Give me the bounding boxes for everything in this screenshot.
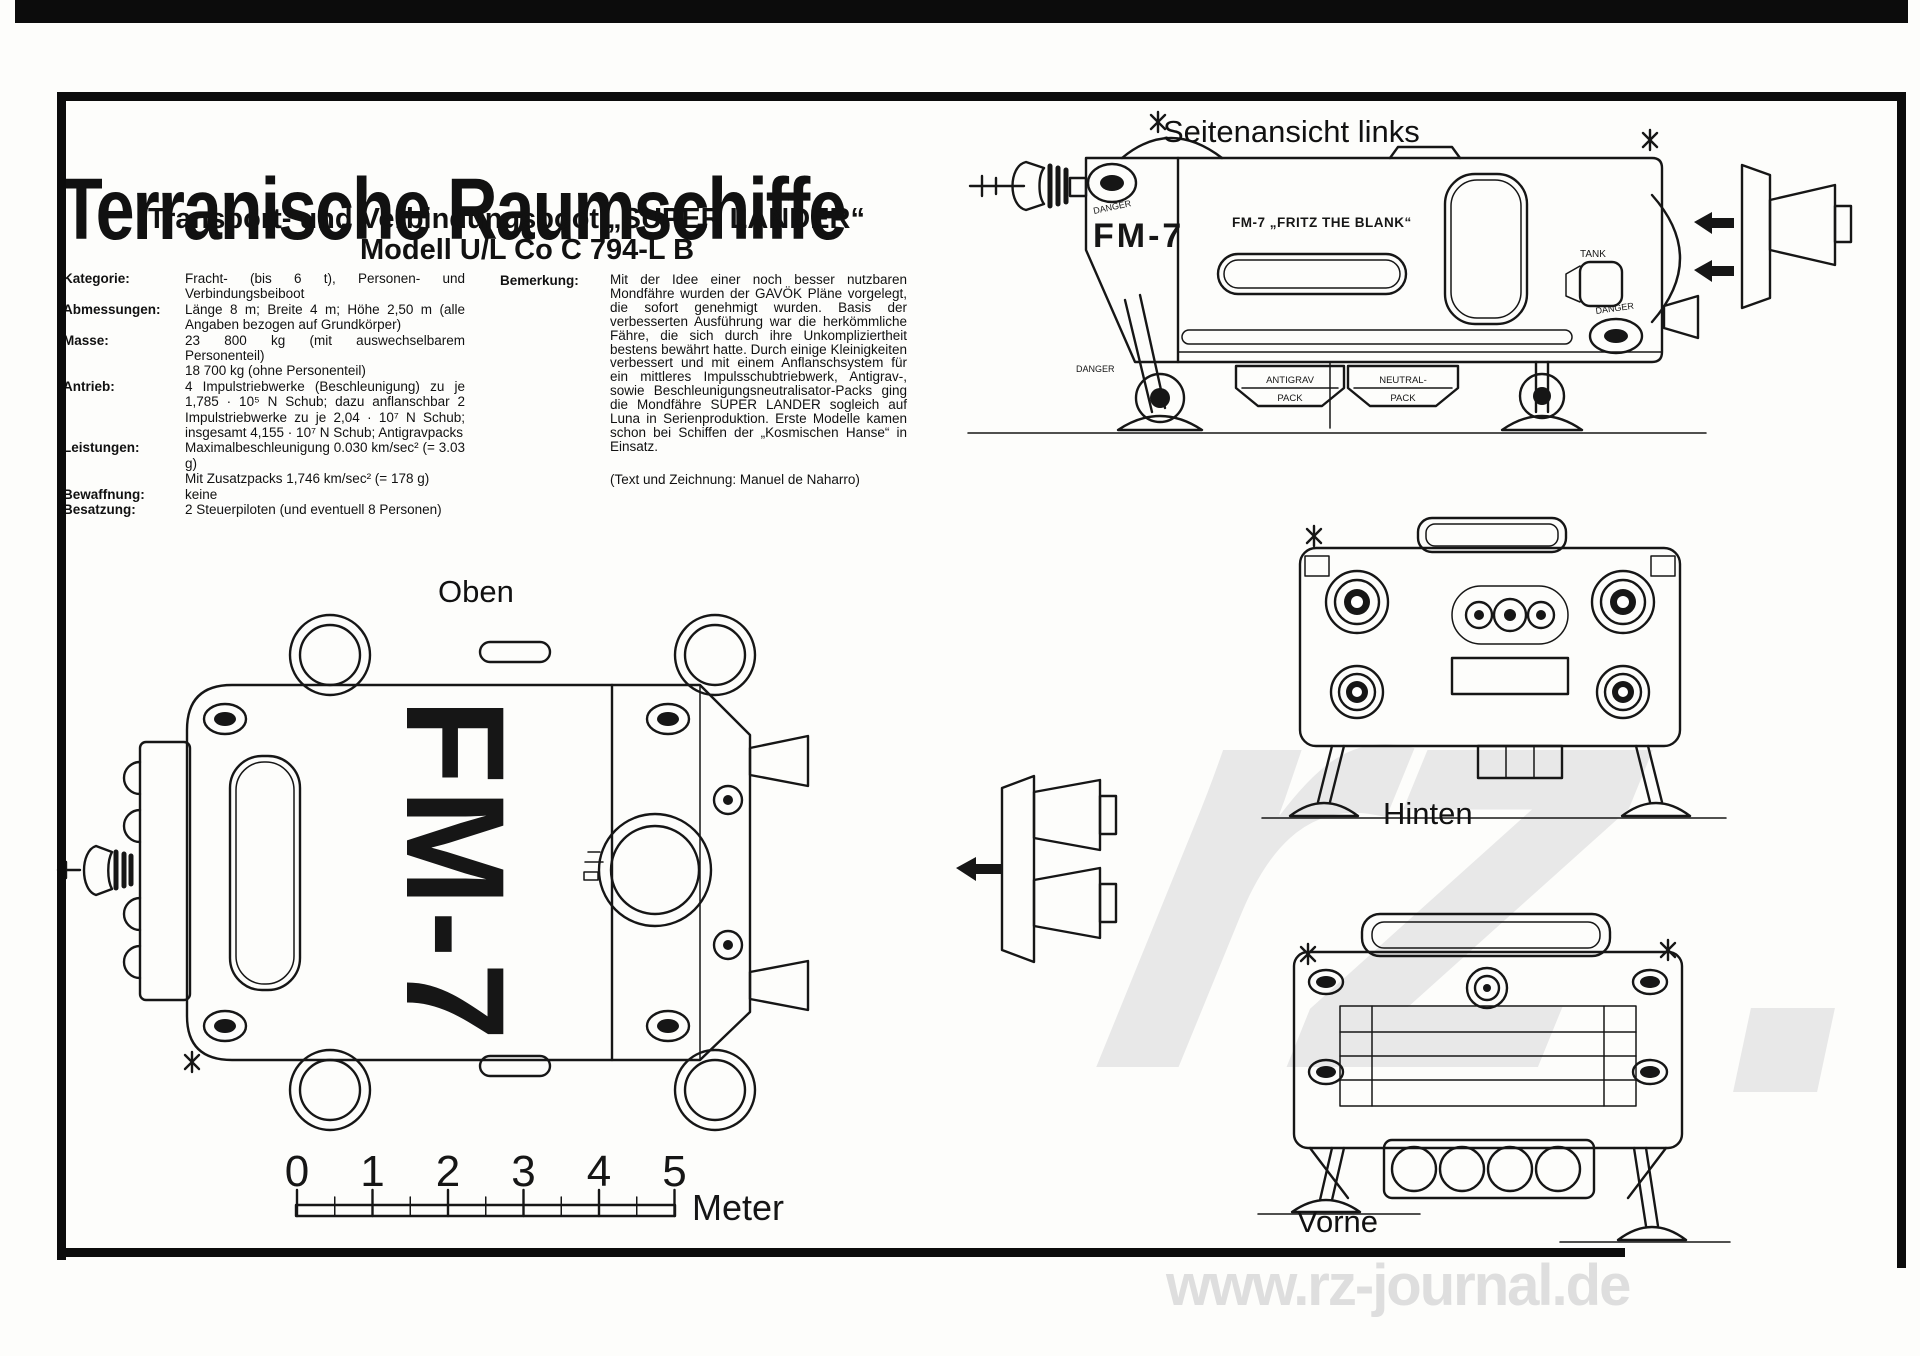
- scale-tick-label: 0: [285, 1147, 309, 1196]
- hull-code-large: FM-7: [1093, 217, 1184, 255]
- rz-journal-logo-dot: [1733, 1008, 1835, 1092]
- spec-label: Antrieb:: [63, 379, 185, 441]
- remark-text: Mit der Idee einer noch besser nutzbaren…: [610, 273, 907, 454]
- scale-tick-label: 4: [587, 1147, 611, 1196]
- spec-row-abmessungen: Abmessungen: Länge 8 m; Breite 4 m; Höhe…: [63, 302, 465, 333]
- pack-box-label: ANTIGRAV: [1266, 375, 1315, 386]
- spec-value: 2 Steuerpiloten (und eventuell 8 Persone…: [185, 502, 465, 517]
- spec-row-bewaffnung: Bewaffnung: keine: [63, 487, 465, 502]
- rz-journal-url-watermark: www.rz-journal.de: [1166, 1252, 1629, 1319]
- side-view-drawing: DANGER DANGER FM-7 FM-7 „FRITZ THE BLANK…: [960, 108, 1860, 448]
- scan-edge-strip: [15, 0, 1908, 23]
- spec-row-kategorie: Kategorie: Fracht- (bis 6 t), Personen- …: [63, 271, 465, 302]
- spec-value: 4 Impulstriebwerke (Beschleunigung) zu j…: [185, 379, 465, 441]
- scale-tick-label: 3: [511, 1147, 535, 1196]
- spec-value: Länge 8 m; Breite 4 m; Höhe 2,50 m (alle…: [185, 302, 465, 333]
- scale-tick-label: 5: [662, 1147, 686, 1196]
- pack-box-label: PACK: [1390, 393, 1416, 404]
- hull-name-plate: FM-7 „FRITZ THE BLANK“: [1232, 215, 1412, 230]
- spec-value: Maximalbeschleunigung 0.030 km/sec² (= 3…: [185, 440, 465, 486]
- spec-label: Besatzung:: [63, 502, 185, 517]
- tank-label: TANK: [1580, 249, 1606, 260]
- scale-bar: 0 1 2 3 4 5 Meter: [265, 1138, 795, 1230]
- page-subtitle: Transport- und Verbindungsboot „SUPER LA…: [148, 203, 865, 236]
- model-designation: Modell U/L Co C 794-L B: [360, 234, 694, 267]
- danger-label: DANGER: [1076, 364, 1115, 374]
- spec-row-antrieb: Antrieb: 4 Impulstriebwerke (Beschleunig…: [63, 379, 465, 441]
- frame-bottom: [57, 1248, 1625, 1257]
- spec-row-masse: Masse: 23 800 kg (mit auswechselbarem Pe…: [63, 333, 465, 379]
- pack-box-label: NEUTRAL-: [1379, 375, 1427, 386]
- lamp-icon: [185, 1052, 199, 1072]
- detach-arrow-icon: [1694, 212, 1734, 234]
- scale-unit-label: Meter: [692, 1187, 784, 1228]
- spec-value: 23 800 kg (mit auswechselbarem Personent…: [185, 333, 465, 379]
- blueprint-page: rz www.rz-journal.de Terranische Raumsch…: [0, 0, 1920, 1356]
- front-view-title: Vorne: [1297, 1204, 1378, 1240]
- danger-label: DANGER: [1092, 198, 1132, 216]
- spec-label: Bewaffnung:: [63, 487, 185, 502]
- spec-value: Fracht- (bis 6 t), Personen- und Verbind…: [185, 271, 465, 302]
- detach-arrow-icon: [956, 857, 1002, 881]
- frame-top: [57, 92, 1906, 101]
- spec-value: keine: [185, 487, 465, 502]
- spec-label: Abmessungen:: [63, 302, 185, 333]
- spec-label: Masse:: [63, 333, 185, 379]
- lamp-icon: [1307, 526, 1321, 546]
- hull-code-top: FM-7: [377, 699, 534, 1046]
- frame-left: [57, 92, 66, 1260]
- detach-arrow-icon: [1694, 260, 1734, 282]
- scale-tick-label: 1: [360, 1147, 384, 1196]
- spec-label: Kategorie:: [63, 271, 185, 302]
- frame-right: [1897, 92, 1906, 1268]
- spec-row-leistungen: Leistungen: Maximalbeschleunigung 0.030 …: [63, 440, 465, 486]
- spec-label: Leistungen:: [63, 440, 185, 486]
- side-view-title: Seitenansicht links: [1163, 114, 1420, 150]
- front-view-drawing: [1245, 888, 1735, 1258]
- spec-row-besatzung: Besatzung: 2 Steuerpiloten (und eventuel…: [63, 502, 465, 517]
- remark-label: Bemerkung:: [500, 273, 579, 288]
- remark-credit: (Text und Zeichnung: Manuel de Naharro): [610, 472, 910, 487]
- top-view-drawing: FM-7: [55, 600, 1165, 1145]
- pack-box-label: PACK: [1277, 393, 1303, 404]
- rear-view-drawing: [1255, 505, 1735, 840]
- danger-label: DANGER: [1595, 301, 1635, 316]
- top-view-title: Oben: [438, 574, 514, 610]
- rear-view-title: Hinten: [1383, 796, 1473, 832]
- scale-tick-label: 2: [436, 1147, 460, 1196]
- spec-table: Kategorie: Fracht- (bis 6 t), Personen- …: [63, 271, 465, 518]
